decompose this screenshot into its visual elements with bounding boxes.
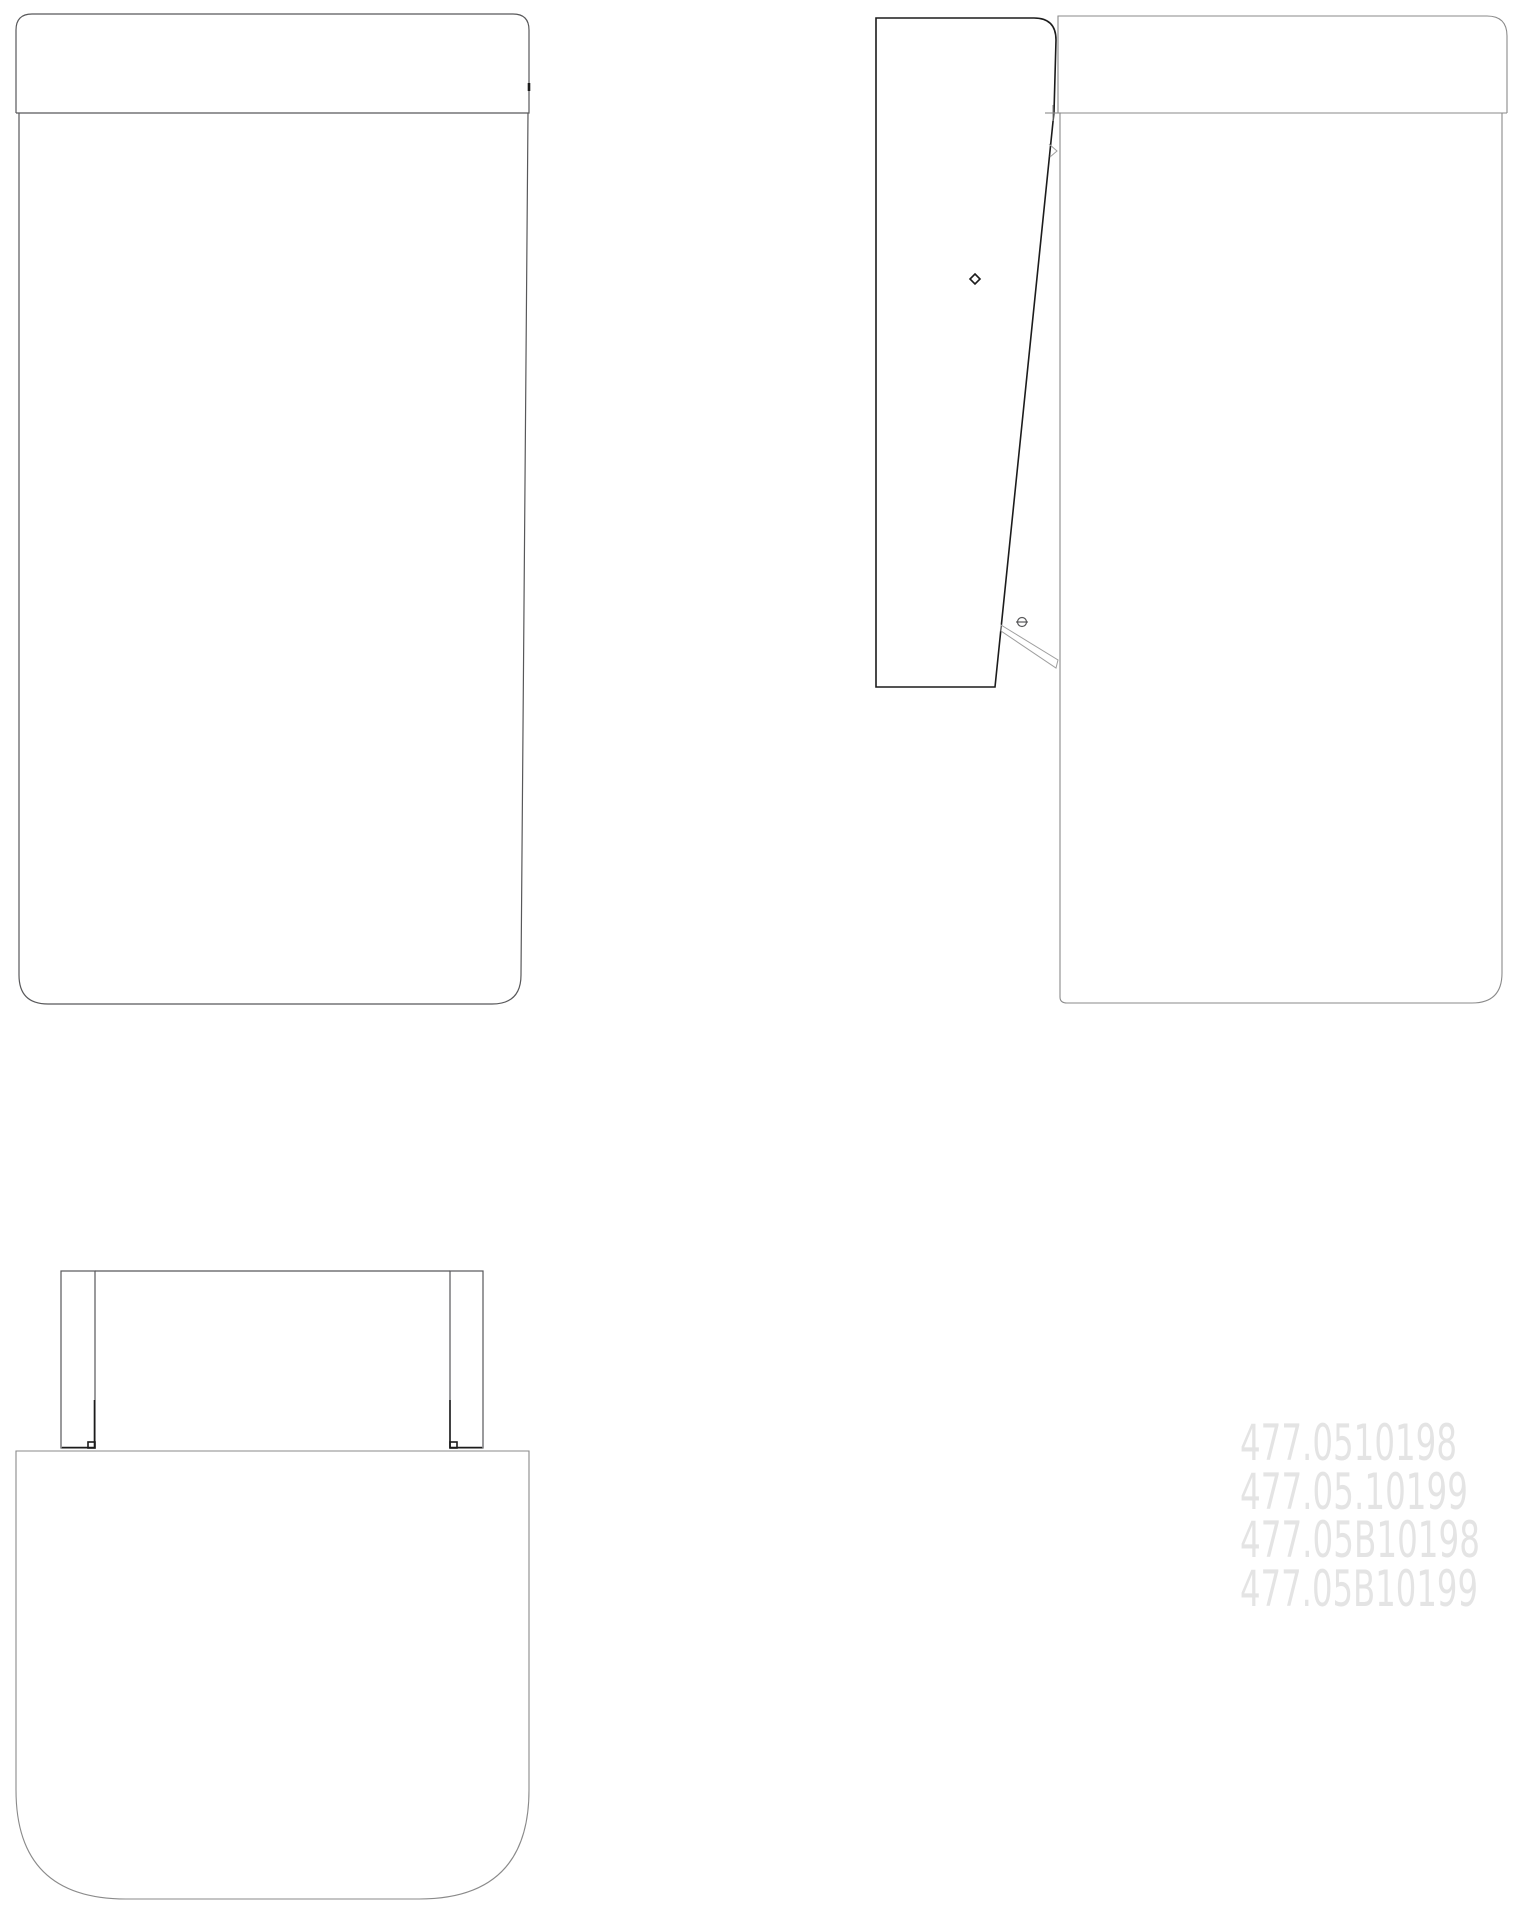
side-view xyxy=(876,16,1507,1003)
side-body-lower xyxy=(1060,113,1502,1003)
front-view xyxy=(16,14,529,1004)
cad-drawing: 477.0510198 477.05.10199 477.05B10198 47… xyxy=(0,0,1521,1920)
diamond-hole-icon xyxy=(970,274,980,284)
side-wall-left xyxy=(61,1271,95,1448)
side-door-open xyxy=(876,18,1056,687)
screw-head-icon xyxy=(1016,618,1028,627)
damper-rail xyxy=(1001,625,1058,668)
door-plan-outline xyxy=(16,1451,529,1899)
front-top-band xyxy=(16,14,529,113)
plan-view xyxy=(16,1271,529,1899)
hinge-cross-marker-icon xyxy=(1045,105,1061,121)
part-numbers: 477.0510198 477.05.10199 477.05B10198 47… xyxy=(1240,1414,1480,1618)
cad-drawing-sheet: 477.0510198 477.05.10199 477.05B10198 47… xyxy=(0,0,1521,1920)
front-door-body xyxy=(19,113,528,1004)
part-number-line-4: 477.05B10199 xyxy=(1240,1560,1478,1618)
side-wall-right xyxy=(450,1271,483,1448)
side-body-top xyxy=(1058,16,1507,113)
